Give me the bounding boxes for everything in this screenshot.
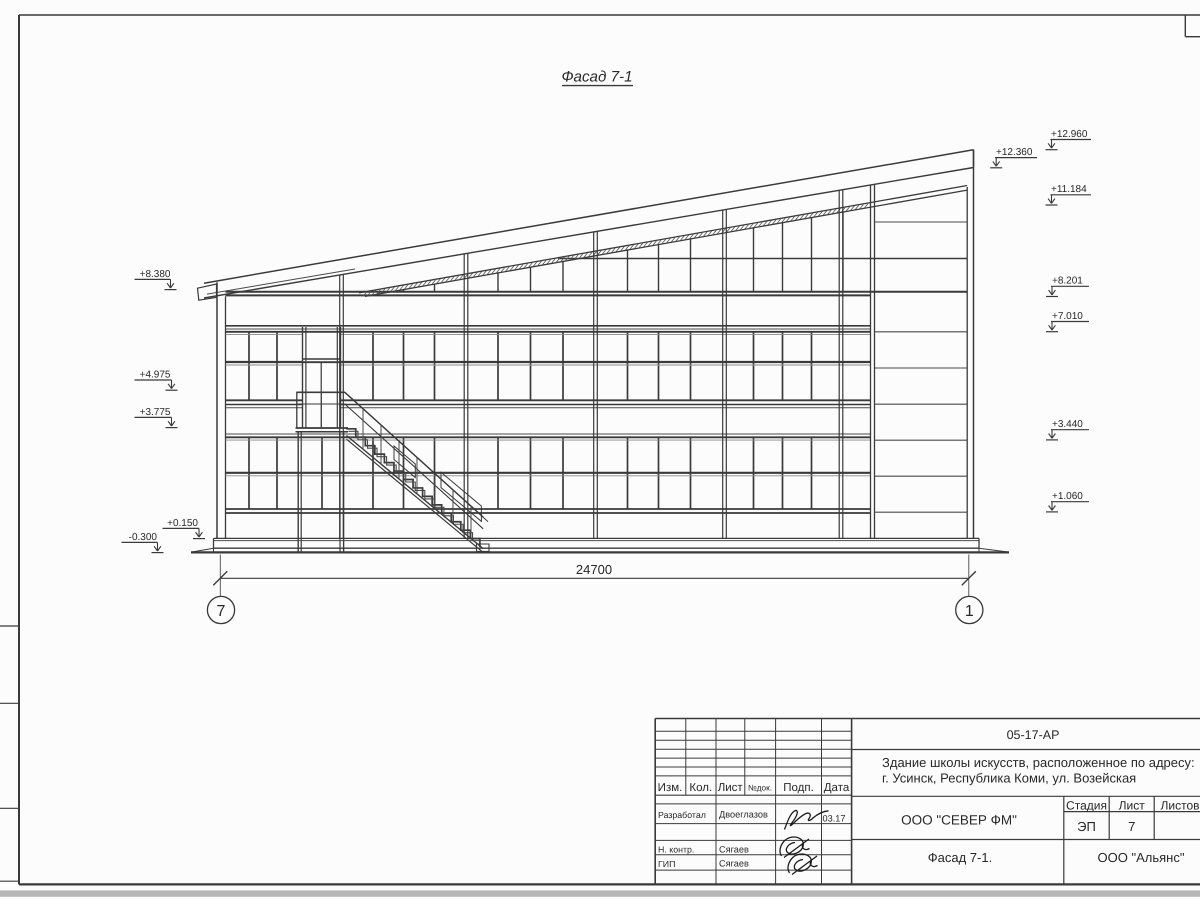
svg-text:+8.201: +8.201 <box>1052 276 1083 287</box>
svg-text:г. Усинск, Республика Коми, ул: г. Усинск, Республика Коми, ул. Возейска… <box>882 770 1136 785</box>
svg-text:1: 1 <box>965 603 974 620</box>
svg-text:№док.: №док. <box>748 784 772 793</box>
svg-text:Лист: Лист <box>718 782 744 794</box>
svg-text:Сягаев: Сягаев <box>719 859 749 869</box>
svg-text:+7.010: +7.010 <box>1052 311 1083 322</box>
svg-text:Фасад 7-1.: Фасад 7-1. <box>928 850 992 865</box>
svg-text:Дата: Дата <box>824 782 850 794</box>
svg-text:Кол.: Кол. <box>689 782 712 794</box>
svg-text:Стадия: Стадия <box>1066 799 1107 813</box>
svg-text:+11.184: +11.184 <box>1051 184 1087 195</box>
svg-text:Изм.: Изм. <box>658 782 683 794</box>
svg-text:ООО "СЕВЕР ФМ": ООО "СЕВЕР ФМ" <box>901 813 1017 828</box>
svg-text:+0.150: +0.150 <box>167 518 198 529</box>
svg-text:7: 7 <box>217 603 226 620</box>
svg-text:+8.380: +8.380 <box>140 269 171 280</box>
svg-text:Сягаев: Сягаев <box>719 844 749 854</box>
svg-text:Н. контр.: Н. контр. <box>658 845 694 855</box>
svg-text:-0.300: -0.300 <box>129 532 158 543</box>
svg-text:Здание школы искусств, располо: Здание школы искусств, расположенное по … <box>882 755 1195 770</box>
svg-text:Листов: Листов <box>1161 799 1200 813</box>
svg-text:+1.060: +1.060 <box>1052 491 1083 502</box>
svg-text:03.17: 03.17 <box>823 814 846 824</box>
svg-text:+12.960: +12.960 <box>1051 129 1088 140</box>
svg-text:24700: 24700 <box>576 562 612 577</box>
svg-text:Подп.: Подп. <box>783 782 814 794</box>
svg-text:7: 7 <box>1128 819 1135 834</box>
svg-text:ЭП: ЭП <box>1077 819 1096 834</box>
svg-text:ООО "Альянс": ООО "Альянс" <box>1098 850 1185 865</box>
svg-text:+3.775: +3.775 <box>140 407 171 418</box>
svg-text:+4.975: +4.975 <box>140 369 171 380</box>
svg-text:Лист: Лист <box>1119 799 1146 813</box>
svg-text:+12.360: +12.360 <box>996 147 1033 158</box>
svg-text:ГИП: ГИП <box>658 859 675 869</box>
svg-text:05-17-АР: 05-17-АР <box>1007 728 1060 742</box>
svg-text:+3.440: +3.440 <box>1052 419 1083 430</box>
svg-text:Разработал: Разработал <box>658 810 706 820</box>
svg-text:Двоеглазов: Двоеглазов <box>719 810 768 820</box>
svg-text:Фасад 7-1: Фасад 7-1 <box>561 69 632 86</box>
